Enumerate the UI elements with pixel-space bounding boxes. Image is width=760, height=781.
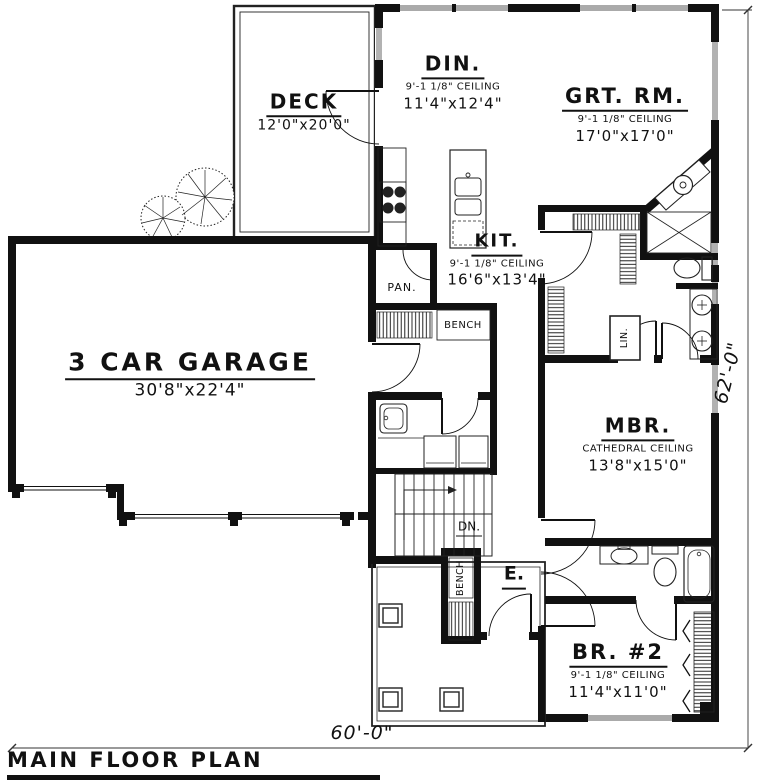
- deck-name: DECK: [267, 89, 341, 117]
- sink: [611, 548, 637, 564]
- pantry-door: [403, 250, 433, 280]
- pantry-label: PAN.: [387, 281, 416, 295]
- kitchen-ceiling: 9'-1 1/8" CEILING: [447, 258, 546, 271]
- closet-door: [540, 232, 592, 284]
- garage-label: 3 CAR GARAGE 30'8"x22'4": [65, 346, 315, 402]
- master-bedroom-label: MBR. CATHEDRAL CEILING 13'8"x15'0": [582, 413, 693, 474]
- bedroom2-name: BR. #2: [569, 639, 667, 668]
- fireplace: [646, 151, 714, 210]
- hall-double-doors: [541, 520, 595, 626]
- overall-width-dimension: 60'-0": [330, 722, 393, 746]
- garage-entry-door: [368, 342, 420, 392]
- entry-closet: [449, 602, 473, 640]
- front-door: [489, 594, 531, 636]
- deck-label: DECK 12'0"x20'0": [257, 89, 350, 135]
- kitchen-size: 16'6"x13'4": [447, 271, 546, 290]
- deck-size: 12'0"x20'0": [257, 117, 350, 135]
- bedroom2-ceiling: 9'-1 1/8" CEILING: [568, 670, 667, 683]
- plan-title-block: MAIN FLOOR PLAN: [7, 748, 380, 780]
- plan-title: MAIN FLOOR PLAN: [7, 748, 263, 772]
- floor-plan: DECK 12'0"x20'0" DIN. 9'-1 1/8" CEILING …: [0, 0, 760, 781]
- locker-closet: [377, 312, 432, 338]
- bathtub: [684, 546, 714, 602]
- dining-name: DIN.: [422, 51, 484, 79]
- kitchen-name: KIT.: [471, 231, 522, 257]
- vanity: [600, 546, 648, 564]
- mud-room-door: [442, 398, 478, 434]
- tree-icon: [141, 168, 234, 240]
- garage-doors: [24, 487, 340, 519]
- linen-label: LIN.: [619, 328, 631, 348]
- dining-size: 11'4"x12'4": [403, 94, 502, 113]
- bench-vertical-label: BENCH: [455, 560, 467, 596]
- entry-label: E.: [502, 563, 526, 590]
- great-room-ceiling: 9'-1 1/8" CEILING: [562, 114, 688, 127]
- vanity-door: [662, 323, 698, 359]
- shower: [647, 212, 711, 253]
- bench-label: BENCH: [444, 320, 482, 333]
- garage-size: 30'8"x22'4": [65, 381, 315, 402]
- dining-label: DIN. 9'-1 1/8" CEILING 11'4"x12'4": [403, 51, 502, 112]
- toilet: [674, 257, 712, 280]
- kitchen-label: KIT. 9'-1 1/8" CEILING 16'6"x13'4": [447, 231, 546, 290]
- great-room-size: 17'0"x17'0": [562, 127, 688, 146]
- stairs-down-label: DN.: [456, 520, 482, 537]
- bedroom2-door: [636, 600, 676, 640]
- toilet: [652, 546, 678, 586]
- master-bedroom-name: MBR.: [602, 413, 675, 441]
- master-bedroom-ceiling: CATHEDRAL CEILING: [582, 443, 693, 456]
- garage-name: 3 CAR GARAGE: [65, 346, 315, 380]
- master-bedroom-size: 13'8"x15'0": [582, 456, 693, 475]
- stairs: [395, 474, 492, 556]
- great-room-name: GRT. RM.: [562, 83, 688, 112]
- hall-bath: [600, 546, 714, 602]
- laundry-fixtures: [378, 404, 488, 468]
- bedroom2-closet: [683, 612, 714, 712]
- great-room-label: GRT. RM. 9'-1 1/8" CEILING 17'0"x17'0": [562, 83, 688, 146]
- bedroom2-size: 11'4"x11'0": [568, 683, 667, 702]
- bedroom2-label: BR. #2 9'-1 1/8" CEILING 11'4"x11'0": [568, 639, 667, 702]
- stove: [380, 182, 406, 222]
- mud-area: [377, 310, 490, 468]
- dining-ceiling: 9'-1 1/8" CEILING: [403, 81, 502, 94]
- bifold-door: [683, 620, 690, 712]
- stairs-arrow: [404, 486, 457, 540]
